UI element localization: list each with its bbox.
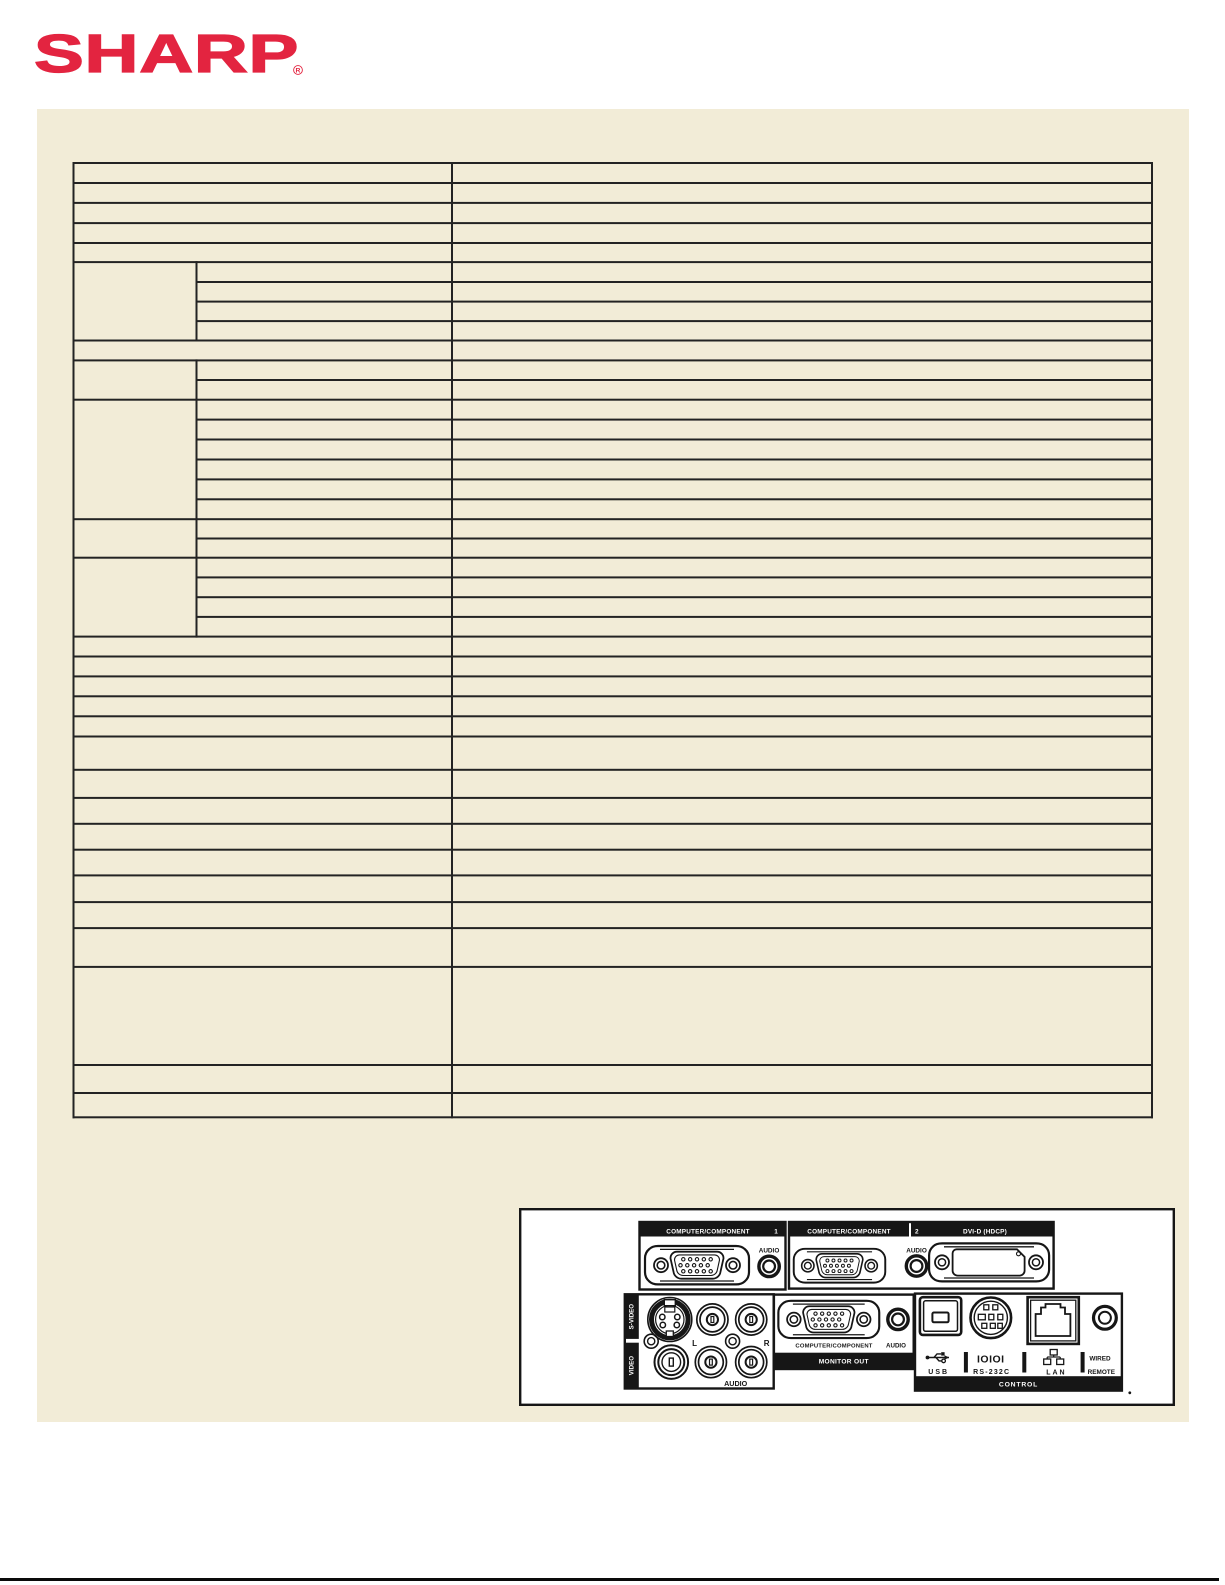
svg-text:COMPUTER/COMPONENT: COMPUTER/COMPONENT [795, 1344, 872, 1350]
svg-text:2: 2 [915, 1228, 919, 1235]
svg-text:AUDIO: AUDIO [724, 1379, 748, 1388]
svg-text:S-VIDEO: S-VIDEO [629, 1304, 636, 1330]
svg-text:WIRED: WIRED [1089, 1355, 1111, 1362]
svg-text:MONITOR OUT: MONITOR OUT [819, 1359, 869, 1366]
svg-text:IOIOI: IOIOI [977, 1354, 1005, 1366]
svg-text:1: 1 [774, 1228, 778, 1235]
svg-text:CONTROL: CONTROL [999, 1381, 1038, 1388]
svg-text:L: L [692, 1339, 697, 1348]
svg-text:VIDEO: VIDEO [629, 1356, 636, 1375]
svg-text:LAN: LAN [1046, 1370, 1066, 1377]
svg-text:AUDIO: AUDIO [886, 1343, 906, 1350]
svg-text:R: R [764, 1339, 770, 1348]
svg-text:AUDIO: AUDIO [906, 1248, 927, 1255]
svg-text:COMPUTER/COMPONENT: COMPUTER/COMPONENT [807, 1229, 890, 1236]
svg-text:RS-232C: RS-232C [973, 1369, 1010, 1376]
svg-text:AUDIO: AUDIO [759, 1248, 780, 1255]
svg-text:REMOTE: REMOTE [1088, 1369, 1116, 1376]
svg-text:DVI-D (HDCP): DVI-D (HDCP) [963, 1229, 1007, 1236]
svg-text:USB: USB [928, 1369, 949, 1376]
svg-text:COMPUTER/COMPONENT: COMPUTER/COMPONENT [666, 1229, 749, 1236]
